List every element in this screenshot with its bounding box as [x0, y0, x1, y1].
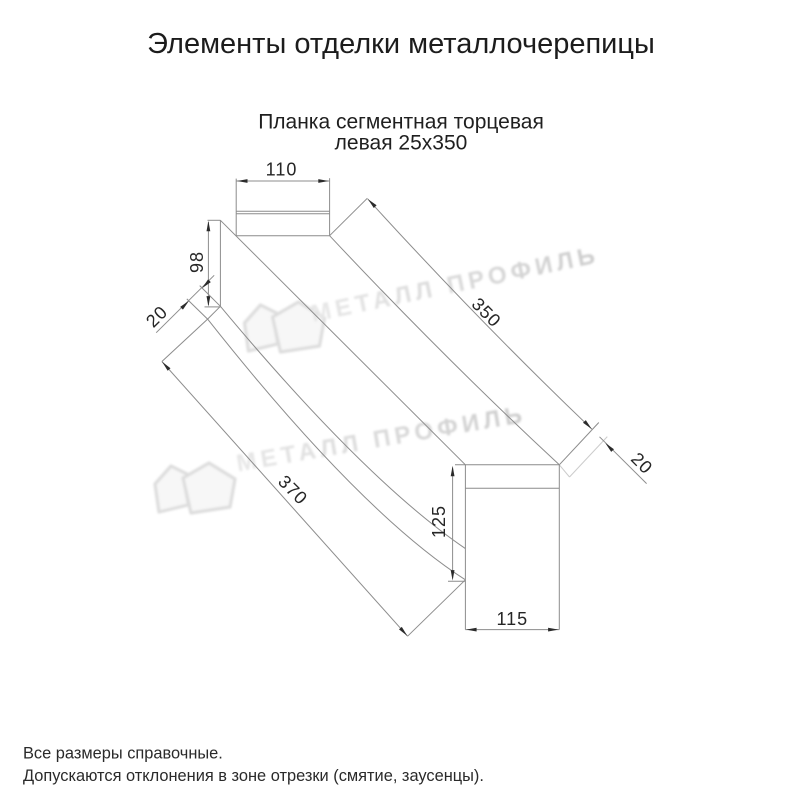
svg-text:Элементы отделки металлочерепи: Элементы отделки металлочерепицы: [147, 28, 655, 60]
svg-text:Планка сегментная торцевая: Планка сегментная торцевая: [258, 111, 544, 134]
svg-text:Все размеры справочные.: Все размеры справочные.: [23, 745, 223, 763]
svg-text:115: 115: [496, 609, 528, 629]
svg-text:98: 98: [187, 251, 207, 273]
svg-text:Допускаются отклонения в зоне: Допускаются отклонения в зоне отрезки (с…: [23, 767, 484, 785]
svg-text:110: 110: [266, 160, 298, 180]
svg-text:левая 25х350: левая 25х350: [335, 132, 468, 155]
svg-text:125: 125: [429, 505, 449, 538]
